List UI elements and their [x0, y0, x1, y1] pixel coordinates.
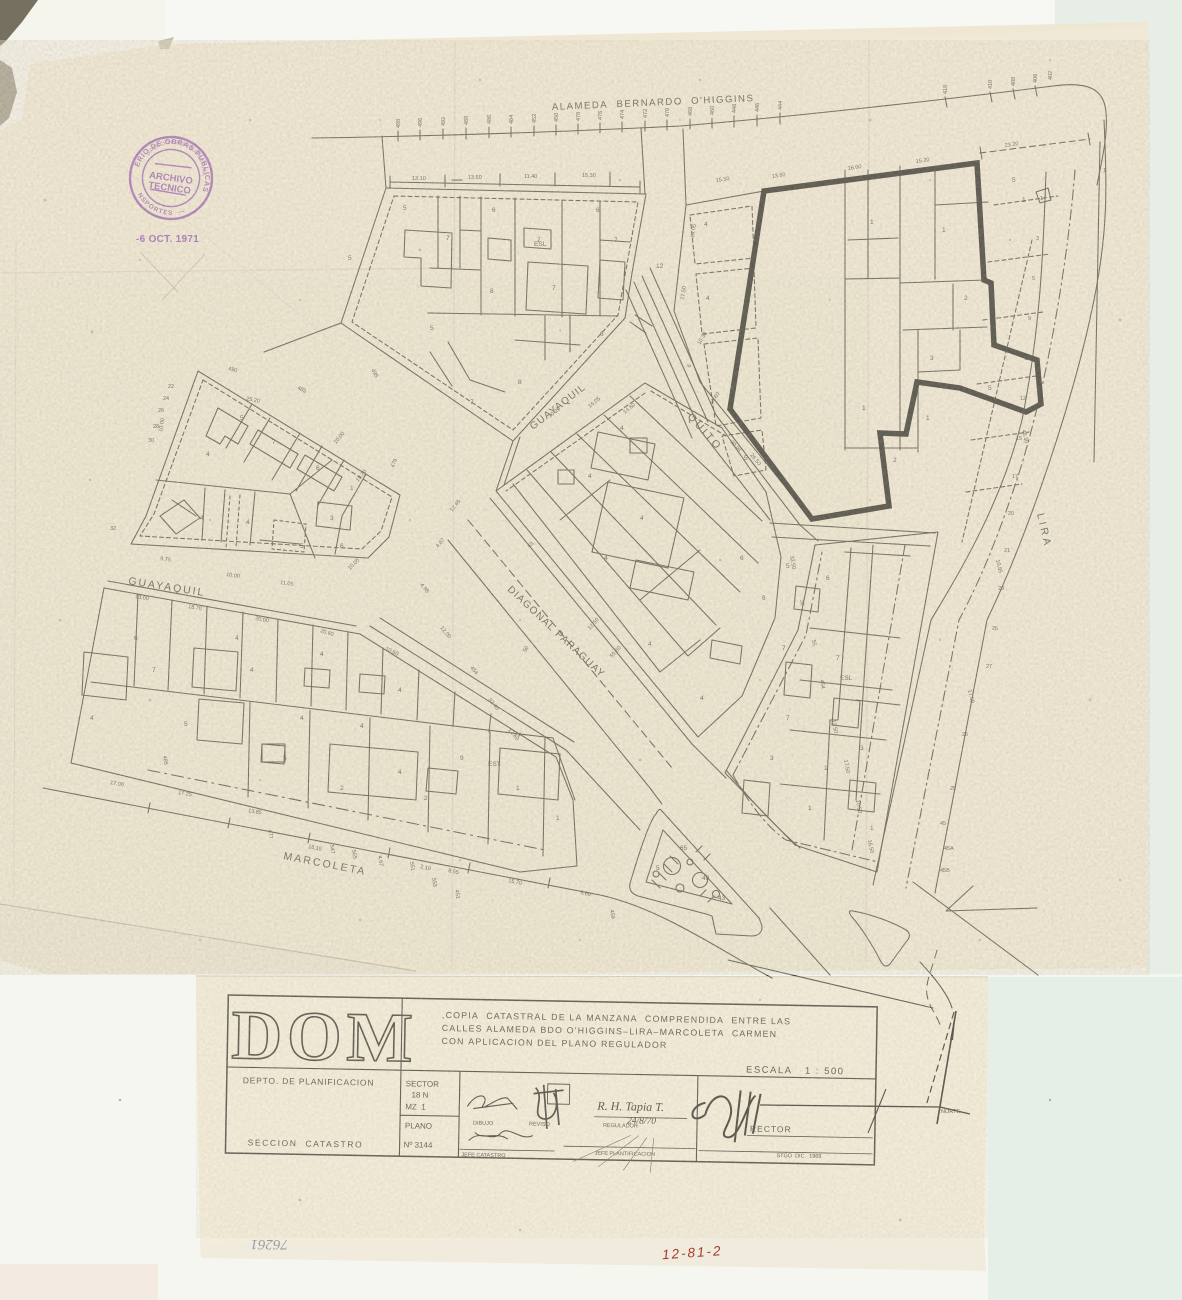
svg-text:76261: 76261 — [251, 1236, 289, 1252]
